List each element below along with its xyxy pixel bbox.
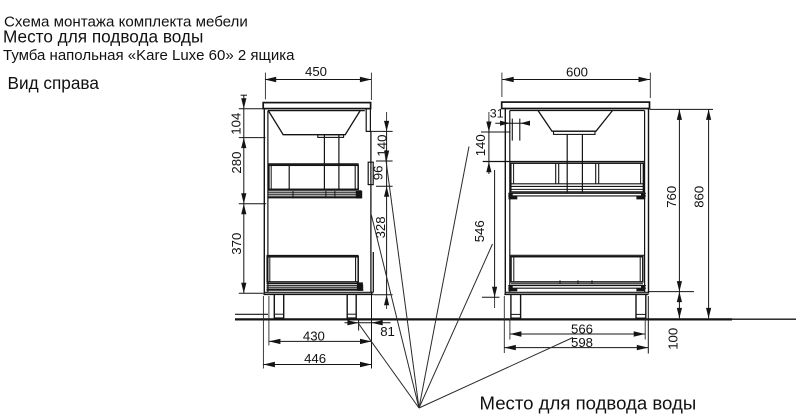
svg-text:760: 760 [664,186,679,208]
svg-text:140: 140 [374,135,389,157]
svg-text:546: 546 [472,220,487,242]
svg-text:600: 600 [566,64,588,79]
svg-text:280: 280 [229,152,244,174]
svg-text:328: 328 [373,216,388,238]
svg-text:598: 598 [571,335,593,350]
svg-text:860: 860 [692,186,707,208]
svg-text:Вид справа: Вид справа [8,73,100,93]
svg-text:430: 430 [303,328,325,343]
svg-text:31: 31 [490,106,504,120]
svg-text:Место для подвода воды: Место для подвода воды [3,27,203,47]
svg-text:81: 81 [380,324,395,339]
svg-text:96: 96 [371,166,386,181]
svg-text:Тумба напольная «Kare Luxe 60»: Тумба напольная «Kare Luxe 60» 2 ящика [3,47,295,64]
svg-text:100: 100 [665,328,680,350]
svg-text:370: 370 [229,233,244,255]
svg-text:104: 104 [228,113,243,135]
svg-text:Место для подвода воды: Место для подвода воды [480,393,697,414]
svg-text:140: 140 [473,134,488,156]
svg-text:450: 450 [305,64,327,79]
svg-text:446: 446 [304,351,326,366]
